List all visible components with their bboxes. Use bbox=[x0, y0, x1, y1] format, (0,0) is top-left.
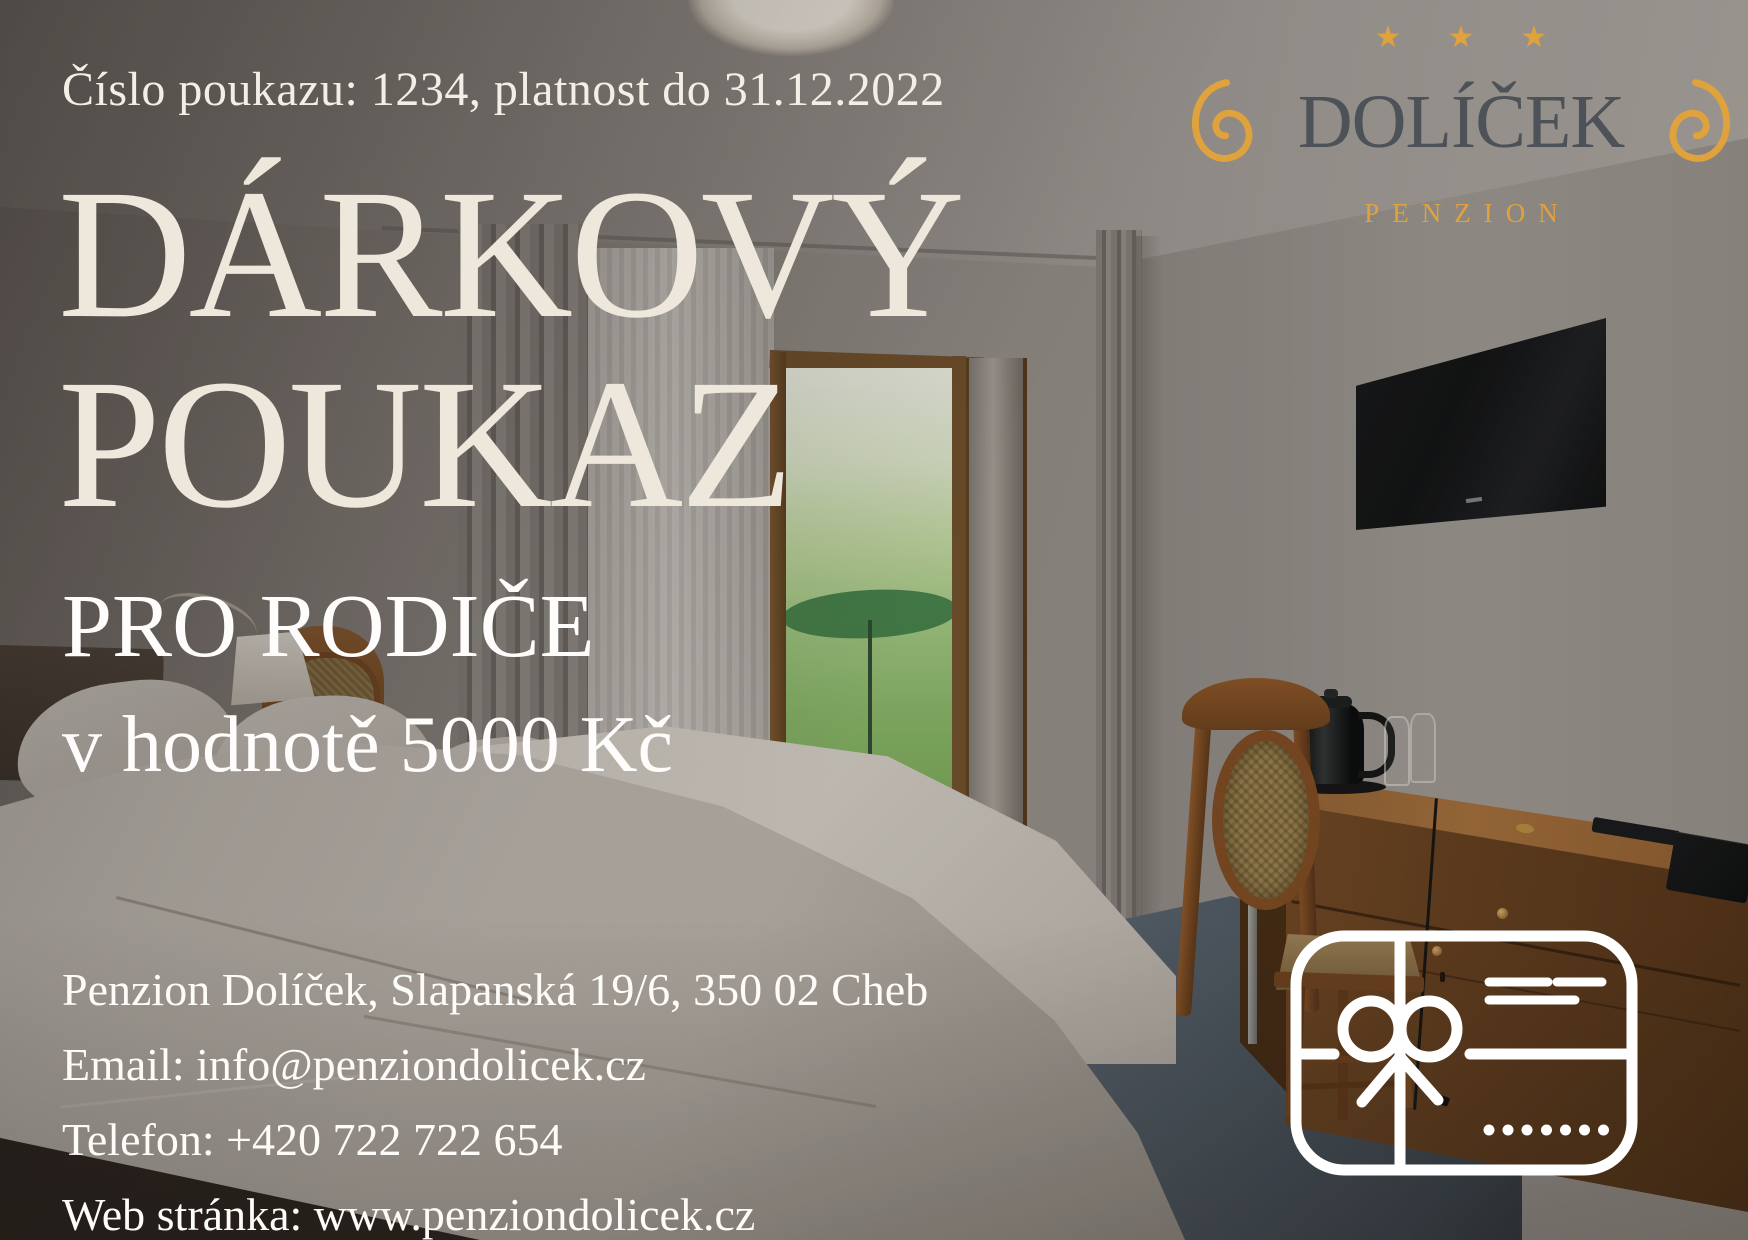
gift-card-icon bbox=[1290, 930, 1638, 1176]
logo-stars: ★★★ bbox=[1168, 20, 1748, 56]
contact-phone: Telefon: +420 722 722 654 bbox=[62, 1102, 928, 1177]
star-icon: ★ bbox=[1448, 20, 1475, 55]
logo-tagline: PENZION bbox=[1168, 198, 1748, 229]
voucher-subtitle: PRO RODIČE bbox=[62, 575, 595, 678]
swirl-ornament-icon bbox=[1668, 74, 1732, 170]
swirl-ornament-icon bbox=[1190, 74, 1254, 170]
voucher-number-line: Číslo poukazu: 1234, platnost do 31.12.2… bbox=[62, 62, 945, 117]
contact-address: Penzion Dolíček, Slapanská 19/6, 350 02 … bbox=[62, 952, 928, 1027]
gift-voucher: Číslo poukazu: 1234, platnost do 31.12.2… bbox=[0, 0, 1748, 1240]
star-icon: ★ bbox=[1520, 20, 1547, 55]
voucher-value: v hodnotě 5000 Kč bbox=[62, 700, 673, 791]
penzion-dolicek-logo: ★★★ DOLÍČEK PENZION bbox=[1168, 14, 1748, 229]
voucher-title-line-2: POUKAZ bbox=[58, 350, 962, 540]
star-icon: ★ bbox=[1375, 20, 1402, 55]
logo-wordmark: DOLÍČEK bbox=[1298, 84, 1625, 160]
logo-brand-row: DOLÍČEK bbox=[1168, 74, 1748, 170]
contact-block: Penzion Dolíček, Slapanská 19/6, 350 02 … bbox=[62, 952, 928, 1240]
contact-web: Web stránka: www.penziondolicek.cz bbox=[62, 1177, 928, 1240]
contact-email: Email: info@penziondolicek.cz bbox=[62, 1027, 928, 1102]
voucher-title: DÁRKOVÝ POUKAZ bbox=[58, 160, 962, 540]
voucher-title-line-1: DÁRKOVÝ bbox=[58, 160, 962, 350]
